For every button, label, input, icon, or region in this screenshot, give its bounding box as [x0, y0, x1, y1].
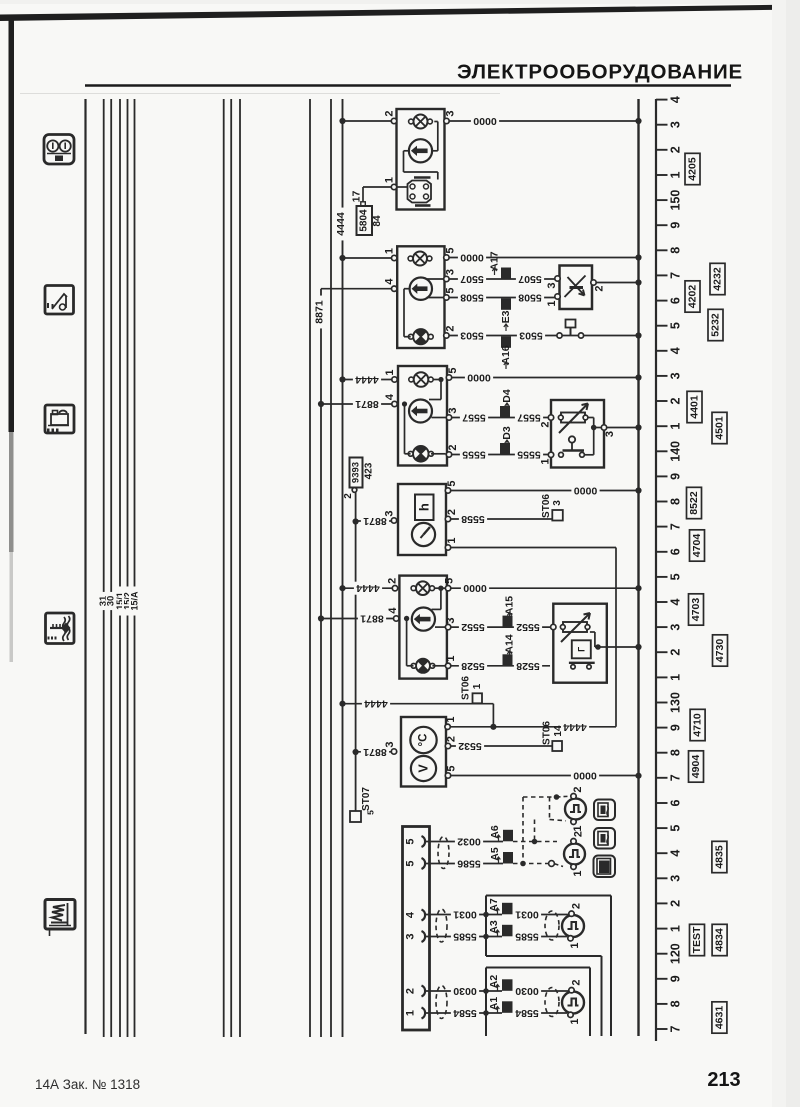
svg-text:6: 6 [669, 799, 683, 806]
svg-text:4704: 4704 [691, 534, 703, 558]
svg-text:1: 1 [384, 177, 396, 183]
svg-text:84: 84 [372, 215, 383, 227]
svg-text:2: 2 [387, 578, 399, 584]
svg-text:4: 4 [669, 347, 683, 354]
svg-text:5557: 5557 [462, 412, 486, 424]
svg-text:4834: 4834 [714, 928, 726, 952]
svg-text:TEST: TEST [691, 926, 703, 953]
svg-text:2: 2 [669, 649, 683, 656]
svg-text:0031: 0031 [515, 909, 539, 921]
svg-text:1: 1 [669, 925, 683, 932]
svg-text:4: 4 [669, 850, 683, 857]
svg-text:4232: 4232 [712, 267, 724, 291]
svg-text:5: 5 [444, 578, 456, 584]
svg-text:2: 2 [343, 493, 354, 499]
svg-text:ST06: ST06 [541, 494, 552, 518]
svg-text:V: V [417, 764, 431, 773]
svg-text:0031: 0031 [453, 909, 477, 921]
svg-text:8522: 8522 [688, 491, 700, 515]
svg-text:0000: 0000 [463, 582, 487, 594]
svg-text:2: 2 [572, 786, 584, 792]
svg-text:15/A: 15/A [130, 591, 140, 611]
svg-text:0030: 0030 [453, 985, 477, 997]
svg-text:1: 1 [384, 248, 396, 254]
svg-text:9: 9 [669, 473, 683, 480]
svg-text:5586: 5586 [457, 858, 481, 870]
svg-text:E3: E3 [500, 310, 512, 323]
svg-text:1: 1 [669, 423, 683, 430]
svg-text:0000: 0000 [460, 252, 484, 264]
svg-text:ЭЛЕКТРООБОРУДОВАНИЕ: ЭЛЕКТРООБОРУДОВАНИЕ [457, 61, 743, 84]
svg-text:5: 5 [445, 287, 457, 293]
svg-text:5508: 5508 [518, 292, 542, 304]
svg-text:2: 2 [571, 903, 583, 909]
svg-text:4703: 4703 [690, 598, 702, 622]
svg-text:5: 5 [405, 838, 417, 844]
svg-text:5507: 5507 [518, 273, 542, 285]
svg-text:423: 423 [364, 462, 375, 479]
svg-text:Г: Г [576, 647, 586, 652]
svg-text:5532: 5532 [458, 740, 482, 752]
svg-text:4: 4 [387, 607, 399, 614]
svg-text:ST07: ST07 [361, 787, 372, 811]
svg-text:5804: 5804 [359, 209, 370, 232]
svg-text:3: 3 [447, 407, 459, 413]
svg-text:8871: 8871 [355, 398, 379, 410]
svg-text:130: 130 [669, 692, 683, 713]
svg-text:5: 5 [446, 765, 458, 771]
svg-text:5: 5 [446, 480, 458, 486]
svg-text:14А Зак. № 1318: 14А Зак. № 1318 [35, 1077, 140, 1092]
svg-text:8871: 8871 [360, 613, 384, 625]
svg-text:D3: D3 [501, 426, 513, 440]
svg-text:D4: D4 [501, 389, 513, 403]
svg-text:5507: 5507 [460, 273, 484, 285]
svg-text:4444: 4444 [563, 721, 587, 733]
svg-text:2: 2 [669, 397, 683, 404]
svg-text:4710: 4710 [692, 713, 704, 737]
svg-text:9: 9 [669, 724, 683, 731]
svg-text:5528: 5528 [516, 660, 540, 672]
svg-text:5552: 5552 [516, 621, 540, 633]
svg-text:120: 120 [669, 943, 683, 964]
svg-text:5: 5 [445, 247, 457, 253]
svg-text:0030: 0030 [515, 985, 539, 997]
svg-text:5: 5 [669, 322, 683, 329]
svg-text:5584: 5584 [515, 1007, 539, 1019]
svg-text:1: 1 [669, 171, 683, 178]
svg-text:0000: 0000 [574, 485, 598, 497]
svg-text:2: 2 [445, 325, 457, 331]
svg-text:5558: 5558 [461, 513, 485, 525]
svg-text:3: 3 [669, 875, 683, 882]
svg-text:4205: 4205 [687, 157, 699, 181]
svg-text:5503: 5503 [460, 330, 484, 342]
svg-text:3: 3 [669, 624, 683, 631]
svg-text:1: 1 [669, 674, 683, 681]
svg-text:1: 1 [445, 655, 457, 661]
svg-text:3: 3 [445, 110, 457, 116]
svg-text:9: 9 [669, 222, 683, 229]
svg-text:5: 5 [447, 367, 459, 373]
svg-text:2: 2 [594, 285, 606, 291]
svg-text:4730: 4730 [714, 639, 726, 663]
svg-text:3: 3 [604, 431, 616, 437]
svg-text:5: 5 [366, 810, 376, 815]
svg-text:8: 8 [669, 247, 683, 254]
svg-text:140: 140 [669, 441, 683, 462]
svg-text:6: 6 [669, 297, 683, 304]
svg-text:2: 2 [540, 421, 552, 427]
svg-text:2: 2 [571, 979, 583, 985]
svg-text:4501: 4501 [714, 416, 726, 440]
svg-text:4444: 4444 [355, 374, 379, 386]
svg-text:5: 5 [669, 825, 683, 832]
svg-text:4: 4 [669, 598, 683, 605]
svg-text:14: 14 [553, 725, 564, 737]
svg-text:4835: 4835 [713, 845, 725, 869]
svg-text:4: 4 [384, 278, 396, 285]
svg-text:5: 5 [405, 860, 417, 866]
svg-text:9: 9 [669, 975, 683, 982]
svg-text:4: 4 [405, 911, 417, 918]
svg-text:4: 4 [669, 96, 683, 103]
svg-text:3: 3 [445, 269, 457, 275]
svg-text:5: 5 [669, 573, 683, 580]
svg-text:17: 17 [351, 191, 363, 203]
svg-text:3: 3 [546, 282, 558, 288]
svg-text:1: 1 [446, 537, 458, 543]
svg-text:3: 3 [445, 617, 457, 623]
svg-text:1: 1 [572, 825, 584, 831]
svg-text:7: 7 [669, 272, 683, 279]
svg-text:1: 1 [384, 369, 396, 375]
svg-text:8871: 8871 [314, 300, 326, 324]
svg-text:5585: 5585 [515, 931, 539, 943]
svg-text:0000: 0000 [473, 115, 497, 127]
svg-text:0032: 0032 [457, 836, 481, 848]
svg-text:ST06: ST06 [542, 721, 553, 745]
svg-text:7: 7 [669, 774, 683, 781]
svg-text:213: 213 [707, 1069, 740, 1091]
svg-text:150: 150 [669, 190, 683, 211]
svg-text:1: 1 [472, 683, 483, 689]
svg-text:3: 3 [384, 510, 396, 516]
svg-text:1: 1 [569, 942, 581, 948]
svg-text:4904: 4904 [690, 755, 702, 779]
svg-text:8: 8 [669, 749, 683, 756]
svg-text:°C: °C [418, 734, 430, 747]
svg-text:ST06: ST06 [461, 676, 472, 700]
svg-text:2: 2 [384, 110, 396, 116]
svg-text:3: 3 [669, 121, 683, 128]
svg-text:5585: 5585 [453, 931, 477, 943]
svg-text:2: 2 [446, 736, 458, 742]
svg-text:2: 2 [573, 831, 585, 837]
svg-text:5555: 5555 [517, 449, 541, 461]
svg-text:2: 2 [669, 146, 683, 153]
svg-text:1: 1 [445, 716, 457, 722]
svg-text:5232: 5232 [710, 313, 722, 337]
svg-text:5584: 5584 [453, 1007, 477, 1019]
svg-text:2: 2 [446, 509, 458, 515]
svg-text:3: 3 [384, 741, 396, 747]
svg-text:5503: 5503 [519, 330, 543, 342]
svg-text:4: 4 [384, 393, 396, 400]
svg-text:8: 8 [669, 498, 683, 505]
svg-text:5557: 5557 [517, 412, 541, 424]
svg-text:5528: 5528 [461, 660, 485, 672]
svg-text:2: 2 [405, 988, 417, 994]
svg-text:5508: 5508 [460, 292, 484, 304]
svg-text:5552: 5552 [461, 621, 485, 633]
svg-text:6: 6 [669, 548, 683, 555]
svg-text:4631: 4631 [713, 1006, 725, 1030]
svg-text:2: 2 [669, 900, 683, 907]
svg-text:2: 2 [447, 444, 459, 450]
svg-text:5555: 5555 [462, 449, 486, 461]
svg-text:1: 1 [540, 458, 552, 464]
svg-text:1: 1 [569, 1018, 581, 1024]
svg-text:1: 1 [572, 870, 584, 876]
svg-text:7: 7 [669, 523, 683, 530]
svg-text:h: h [417, 503, 432, 511]
svg-text:4202: 4202 [687, 285, 699, 309]
svg-text:4444: 4444 [335, 212, 347, 236]
svg-text:4444: 4444 [364, 698, 388, 710]
svg-text:8: 8 [669, 1000, 683, 1007]
svg-text:3: 3 [405, 933, 417, 939]
svg-text:4401: 4401 [689, 395, 701, 419]
svg-text:4444: 4444 [356, 582, 380, 594]
svg-text:7: 7 [669, 1025, 683, 1032]
svg-text:3: 3 [552, 500, 563, 506]
svg-text:0000: 0000 [467, 372, 491, 384]
svg-text:1: 1 [546, 300, 558, 306]
svg-text:0000: 0000 [573, 770, 597, 782]
svg-text:9393: 9393 [351, 462, 362, 483]
svg-text:1: 1 [405, 1010, 417, 1016]
svg-text:3: 3 [669, 372, 683, 379]
